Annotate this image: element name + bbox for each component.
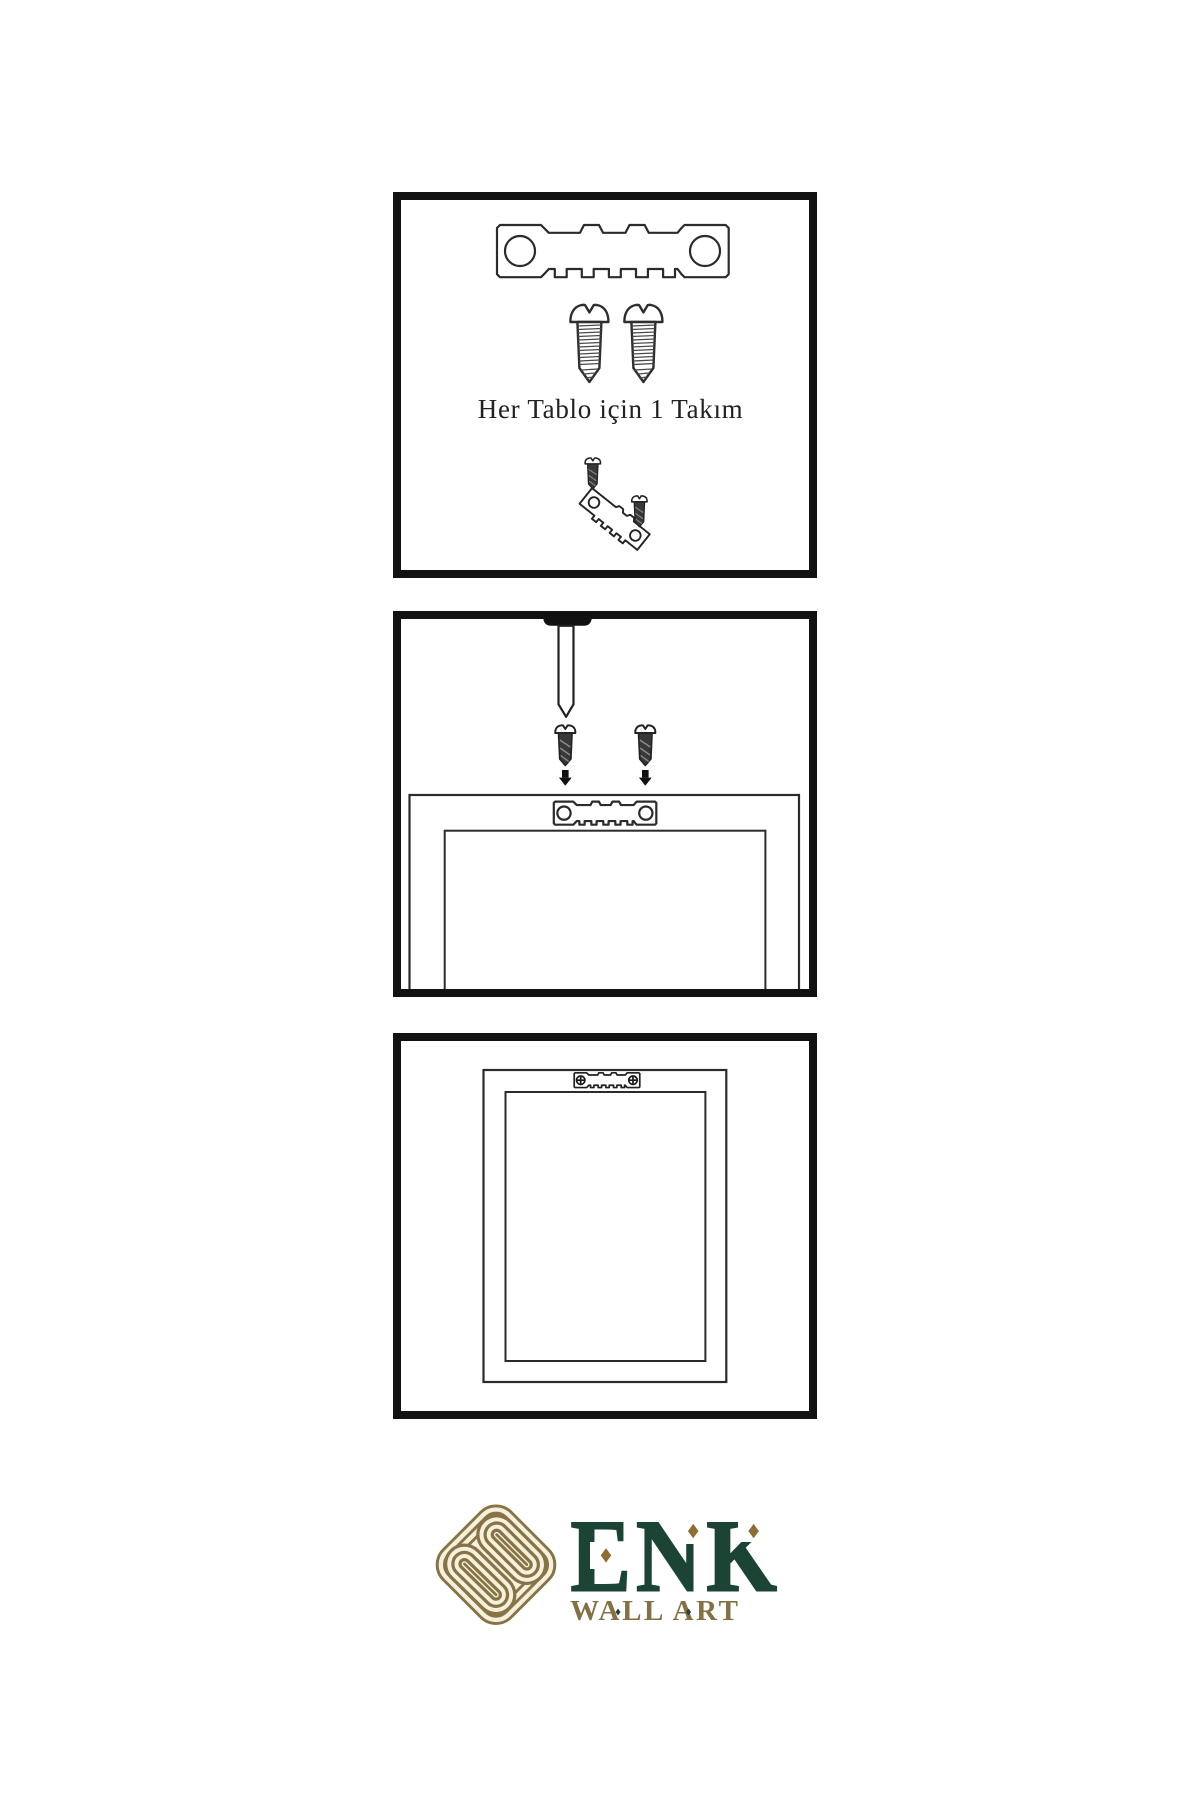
svg-text:Her Tablo için 1 Takım: Her Tablo için 1 Takım [478, 394, 744, 424]
svg-text:WALL ART: WALL ART [570, 1595, 740, 1627]
